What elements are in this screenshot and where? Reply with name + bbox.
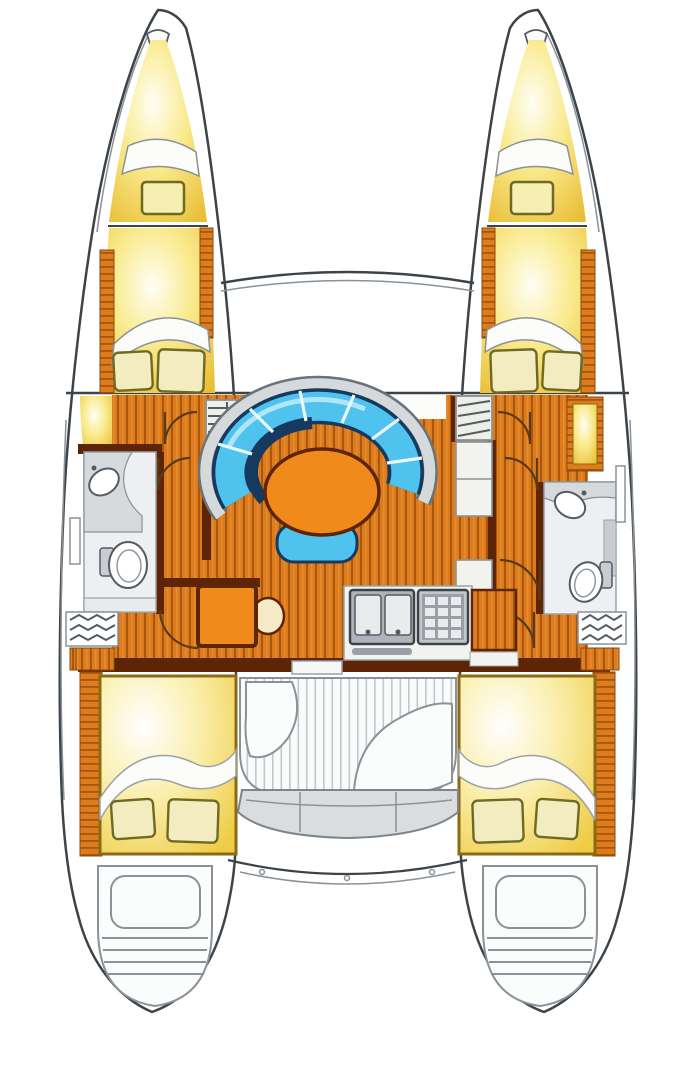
chart-table	[198, 586, 256, 646]
port-yellow-corner	[80, 396, 112, 452]
port-forward-cabin	[100, 228, 215, 393]
sink-basin-left	[355, 595, 381, 635]
vent-locker	[66, 612, 118, 646]
starboard-aft-cabin	[459, 648, 619, 856]
floor-plan-canvas	[0, 0, 695, 1080]
pillow	[472, 799, 523, 843]
sink-faucet	[92, 466, 97, 471]
starboard-wardrobe	[567, 397, 603, 471]
galley-cabinet-counter	[470, 652, 518, 666]
deck-fitting	[430, 870, 435, 875]
pillow	[167, 799, 218, 843]
corner-locker	[76, 648, 114, 670]
pillow	[535, 799, 580, 840]
cabin-wall-starboard	[581, 250, 595, 393]
pillow	[111, 799, 156, 840]
starboard-companionway-steps	[456, 396, 492, 440]
galley-cabinet	[472, 590, 516, 650]
companionway-door	[292, 661, 342, 674]
starboard-forward-cabin	[480, 228, 595, 393]
hull-window	[70, 518, 80, 564]
transverse-bench	[238, 790, 458, 838]
pillow	[490, 349, 537, 393]
faucet	[366, 630, 371, 635]
sink-basin-right	[385, 595, 411, 635]
port-aft-cabin	[76, 648, 236, 856]
front-crossbeam-inner-line	[221, 281, 474, 292]
cockpit	[238, 661, 458, 838]
deck-fitting	[260, 870, 265, 875]
vent-locker	[578, 612, 626, 644]
corner-locker	[581, 648, 619, 670]
galley-handle	[352, 648, 412, 655]
deck-fitting	[345, 876, 350, 881]
lower-counter	[84, 598, 156, 612]
catamaran-floor-plan	[0, 0, 695, 1080]
cabin-wall-port	[482, 228, 495, 338]
faucet	[396, 630, 401, 635]
aft-beam	[228, 860, 467, 884]
cabin-wall-port	[100, 250, 114, 393]
starboard-transom	[483, 866, 597, 1006]
pillow	[157, 349, 204, 393]
deck-hatch	[142, 182, 184, 214]
deck-hatch	[511, 182, 553, 214]
stern-locker	[496, 876, 585, 928]
sink-faucet	[582, 491, 587, 496]
cabin-wall-starboard	[200, 228, 213, 338]
port-transom	[98, 866, 212, 1006]
pillow	[113, 351, 153, 391]
salon	[78, 384, 610, 672]
salon-table	[265, 449, 379, 535]
galley	[344, 586, 518, 666]
pillow	[542, 351, 582, 391]
front-crossbeam	[221, 272, 474, 283]
stern-locker	[111, 876, 200, 928]
hull-window	[616, 466, 625, 522]
